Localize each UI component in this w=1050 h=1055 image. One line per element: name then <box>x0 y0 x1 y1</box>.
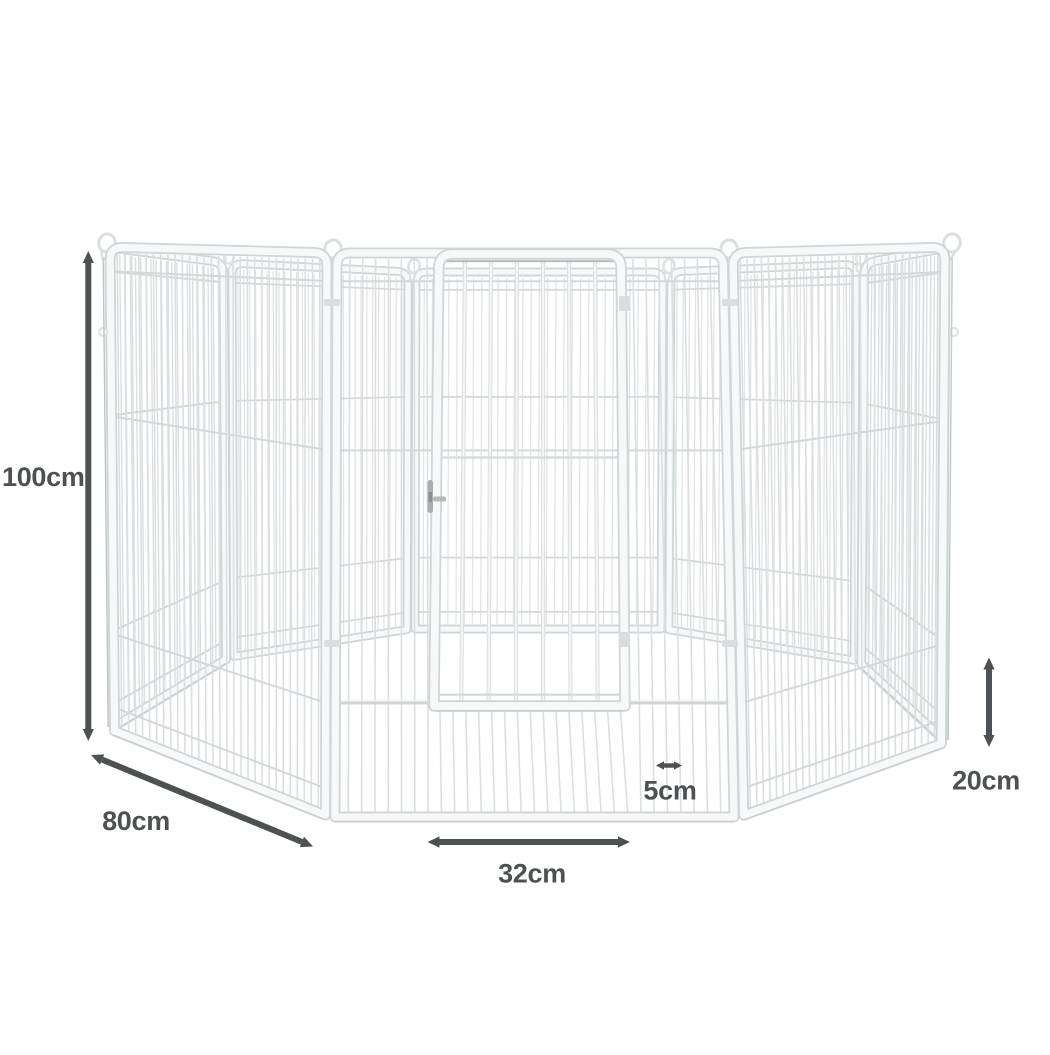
svg-text:32cm: 32cm <box>498 859 566 889</box>
svg-text:20cm: 20cm <box>952 766 1020 796</box>
svg-text:5cm: 5cm <box>643 776 696 806</box>
svg-text:80cm: 80cm <box>102 806 170 836</box>
svg-text:100cm: 100cm <box>2 462 85 492</box>
